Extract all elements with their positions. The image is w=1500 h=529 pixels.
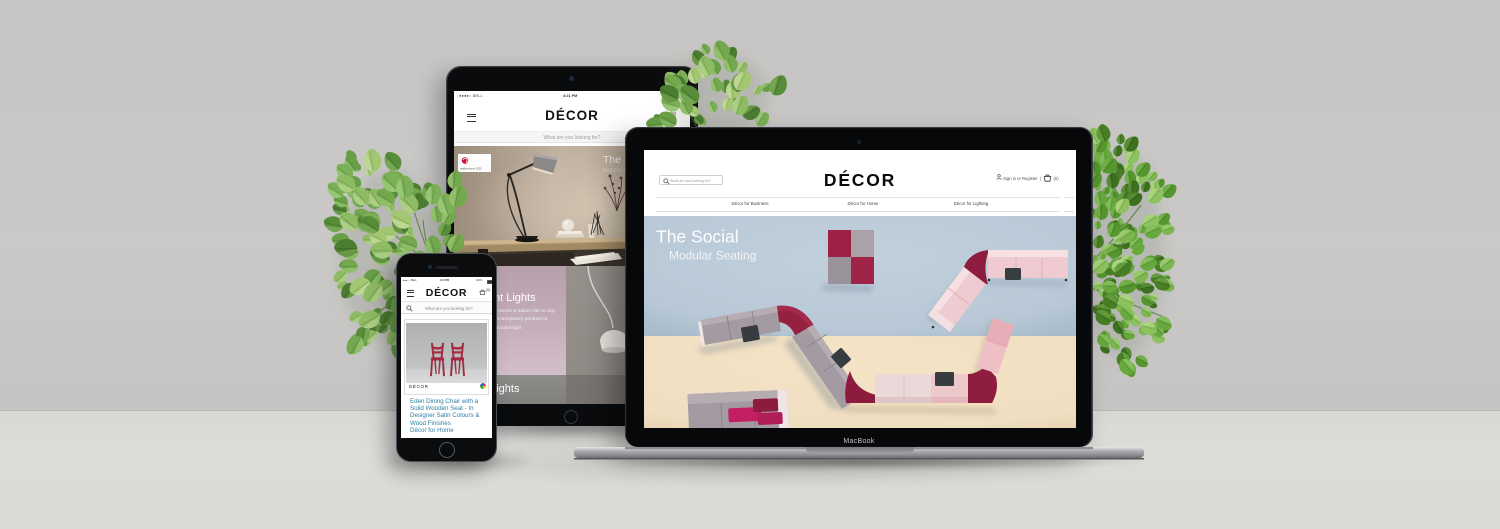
svg-text:The Social: The Social bbox=[656, 227, 739, 247]
svg-text:Modular Seating: Modular Seating bbox=[669, 249, 756, 263]
